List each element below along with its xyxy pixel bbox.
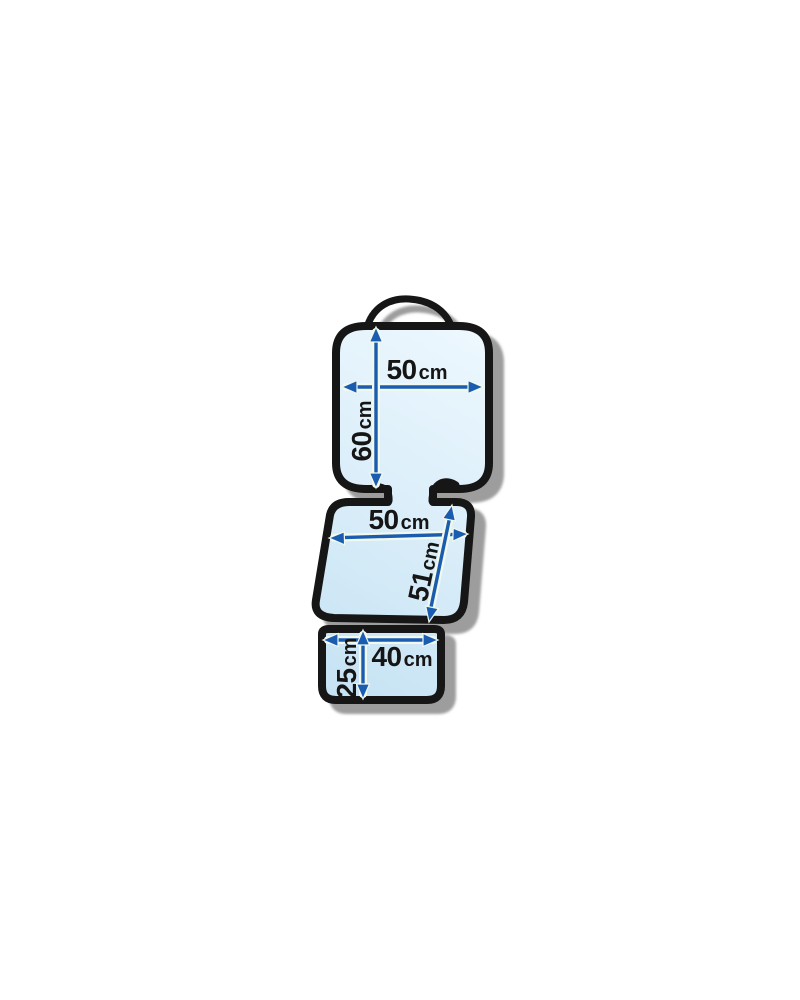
seat-protector-diagram: 50cm 60cm 50cm 51cm 40cm 25cm xyxy=(0,0,800,1000)
page-background: 50cm 60cm 50cm 51cm 40cm 25cm xyxy=(0,0,800,1000)
